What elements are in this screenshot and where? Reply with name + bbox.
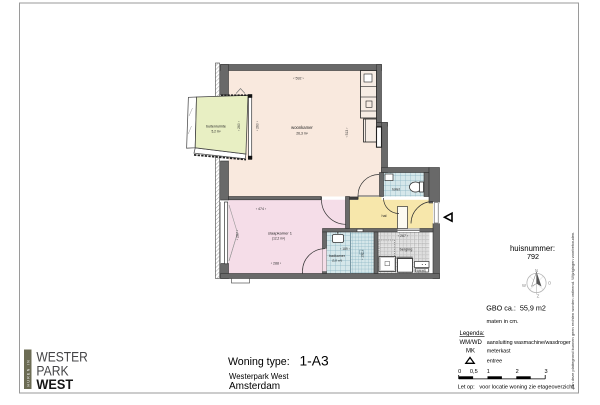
svg-text:entree: entree	[487, 359, 502, 365]
svg-text:5,2 m²: 5,2 m²	[211, 130, 220, 134]
svg-text:woonkamer: woonkamer	[291, 125, 313, 130]
svg-text:Westerpark West: Westerpark West	[229, 372, 289, 381]
svg-text:maten in cm.: maten in cm.	[487, 319, 519, 325]
svg-text:WM/WD: WM/WD	[460, 340, 483, 346]
svg-text:W: W	[522, 283, 526, 288]
svg-text:slaapkamer 1: slaapkamer 1	[268, 231, 293, 236]
svg-text:‹ 260 ›: ‹ 260 ›	[256, 121, 260, 131]
svg-text:Aan deze plattegrond kunnen ge: Aan deze plattegrond kunnen geen rechten…	[570, 232, 575, 390]
svg-text:HUREN IN: HUREN IN	[27, 359, 31, 387]
svg-text:1-A3: 1-A3	[300, 353, 329, 368]
svg-text:hal: hal	[381, 214, 386, 218]
svg-text:‹ 287 ›: ‹ 287 ›	[236, 229, 240, 240]
svg-text:‹ 474 ›: ‹ 474 ›	[256, 207, 267, 211]
svg-text:‹ 513 ›: ‹ 513 ›	[345, 128, 349, 138]
svg-text:Z: Z	[537, 294, 540, 299]
svg-text:‹ 288 ›: ‹ 288 ›	[271, 262, 282, 266]
svg-text:MK: MK	[466, 349, 475, 355]
svg-text:N: N	[535, 268, 538, 273]
svg-text:3: 3	[544, 369, 547, 375]
svg-text:Woning type:: Woning type:	[228, 356, 290, 368]
svg-text:‹ 192 ›: ‹ 192 ›	[361, 250, 365, 260]
svg-text:2: 2	[516, 369, 519, 375]
svg-text:berging: berging	[400, 248, 413, 252]
svg-text:792: 792	[527, 252, 539, 261]
svg-text:badkamer: badkamer	[329, 254, 346, 258]
svg-text:0,5: 0,5	[470, 369, 478, 375]
svg-text:‹ 260 ›: ‹ 260 ›	[237, 121, 241, 131]
svg-text:Let op: voor locatie woning: Let op: voor locatie woning zie etageove…	[458, 384, 576, 390]
svg-text:Legenda:: Legenda:	[460, 331, 485, 337]
svg-text:‹ 189 ›: ‹ 189 ›	[340, 247, 350, 251]
svg-text:(3,8 m²): (3,8 m²)	[332, 259, 343, 263]
svg-text:‹ 592 ›: ‹ 592 ›	[293, 77, 304, 81]
svg-text:WM/WD: WM/WD	[417, 268, 427, 272]
svg-text:WESTER: WESTER	[36, 350, 88, 365]
svg-text:1: 1	[487, 369, 490, 375]
svg-text:aansluiting wasmachine/wasdrog: aansluiting wasmachine/wasdroger	[487, 340, 571, 346]
svg-text:meterkast: meterkast	[487, 349, 511, 355]
svg-text:GBO ca.: 55,9 m2: GBO ca.: 55,9 m2	[486, 303, 546, 312]
svg-text:(12,2 m²): (12,2 m²)	[272, 237, 285, 241]
svg-text:buitenruimte: buitenruimte	[206, 125, 226, 129]
svg-text:0: 0	[458, 369, 461, 375]
svg-text:WEST: WEST	[36, 377, 73, 392]
svg-text:26,3 m²: 26,3 m²	[296, 132, 308, 136]
svg-text:‹ 267 ›: ‹ 267 ›	[398, 234, 409, 238]
svg-text:toilet: toilet	[392, 188, 400, 192]
svg-text:Amsterdam: Amsterdam	[229, 381, 280, 392]
